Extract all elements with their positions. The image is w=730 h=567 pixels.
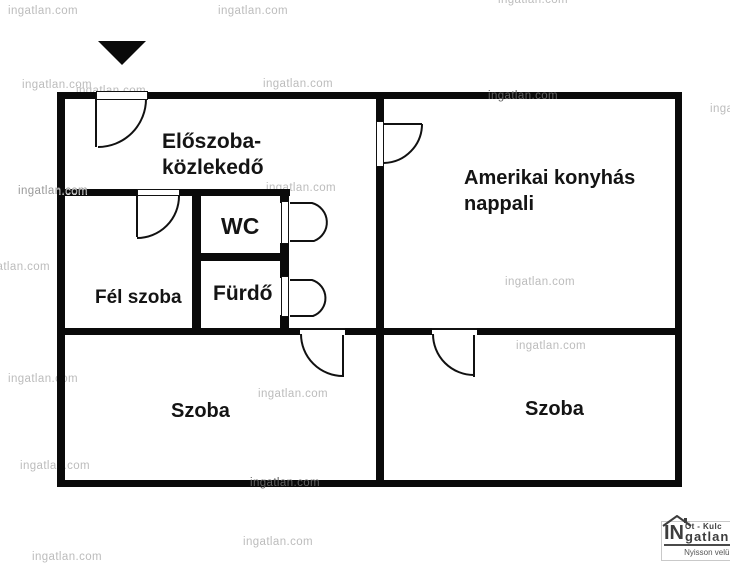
logo-brand-rest: gatlan	[685, 531, 729, 542]
wall-mid-horizontal-b	[345, 328, 432, 335]
watermark: ingatlan.com	[32, 551, 102, 563]
logo-tagline: Nyisson velün	[664, 548, 730, 557]
logo-brand-in: IN	[664, 524, 684, 542]
szoba-right-door-arc	[433, 334, 474, 375]
room-label-line: Amerikai konyhás	[464, 165, 635, 191]
room-label-line: közlekedő	[162, 155, 264, 181]
felszoba-door-arc	[137, 196, 179, 238]
watermark: ingatlan.com	[243, 536, 313, 548]
logo-divider	[664, 544, 730, 546]
szoba-right-door-threshold	[432, 328, 477, 334]
watermark: ingatlan.com	[0, 261, 50, 273]
agency-logo: IN Öt - Kulc gatlan Nyisson velün	[661, 521, 730, 561]
wall-bottom	[57, 480, 682, 487]
wall-right	[675, 92, 682, 487]
wall-top-main	[148, 92, 682, 99]
wc-door	[290, 203, 327, 241]
wc-door-jamb	[281, 201, 289, 244]
room-label-line: nappali	[464, 191, 635, 217]
watermark: ingatlan.com	[18, 185, 88, 197]
watermark: ingatlan.com	[218, 5, 288, 17]
entrance-arrow-icon	[98, 41, 148, 67]
watermark: ingatlan.com	[20, 460, 90, 472]
watermark: ingatlan.com	[505, 276, 575, 288]
room-label-szoba-left: Szoba	[171, 400, 230, 423]
watermark: ingatlan.com	[498, 0, 568, 6]
furdo-door-jamb	[281, 276, 289, 317]
nappali-door-arc	[384, 124, 422, 163]
room-label-eloszoba-kozlekedo: Előszoba- közlekedő	[162, 129, 264, 181]
wall-mid-horizontal-c	[477, 328, 675, 335]
wall-corridor-b	[280, 243, 289, 278]
watermark: ingatlan.com	[8, 373, 78, 385]
watermark: ingatlan.com	[710, 103, 730, 115]
nappali-door-jamb	[376, 121, 384, 167]
room-label-furdo: Fürdő	[213, 282, 272, 306]
wall-wc-furdo-divider	[201, 253, 280, 261]
wall-mid-horizontal-a	[65, 328, 300, 335]
wall-nappali-left-a	[376, 98, 384, 122]
felszoba-door-jamb	[137, 189, 180, 196]
szoba-left-door-threshold	[300, 328, 345, 334]
watermark: ingatlan.com	[258, 388, 328, 400]
watermark: ingatlan.com	[8, 5, 78, 17]
furdo-door	[290, 280, 325, 316]
room-label-line: Előszoba-	[162, 129, 264, 155]
watermark: ingatlan.com	[263, 78, 333, 90]
floor-plan: ingatlan.com ingatlan.com ingatlan.com i…	[0, 0, 730, 567]
wall-left	[57, 92, 65, 487]
watermark: ingatlan.com	[250, 477, 320, 489]
watermark: ingatlan.com	[488, 90, 558, 102]
room-label-fel-szoba: Fél szoba	[95, 287, 182, 309]
entry-door-arc	[98, 99, 146, 147]
szoba-left-door-arc	[301, 334, 343, 376]
watermark: ingatlan.com	[516, 340, 586, 352]
wall-felszoba-wc-divider	[192, 189, 201, 335]
room-label-wc: WC	[221, 213, 259, 240]
entry-door-jamb	[96, 91, 148, 100]
house-roof-icon	[662, 515, 692, 527]
wall-nappali-left-b	[376, 167, 384, 480]
room-label-szoba-right: Szoba	[525, 398, 584, 421]
room-label-amerikai-konyhas-nappali: Amerikai konyhás nappali	[464, 165, 635, 217]
